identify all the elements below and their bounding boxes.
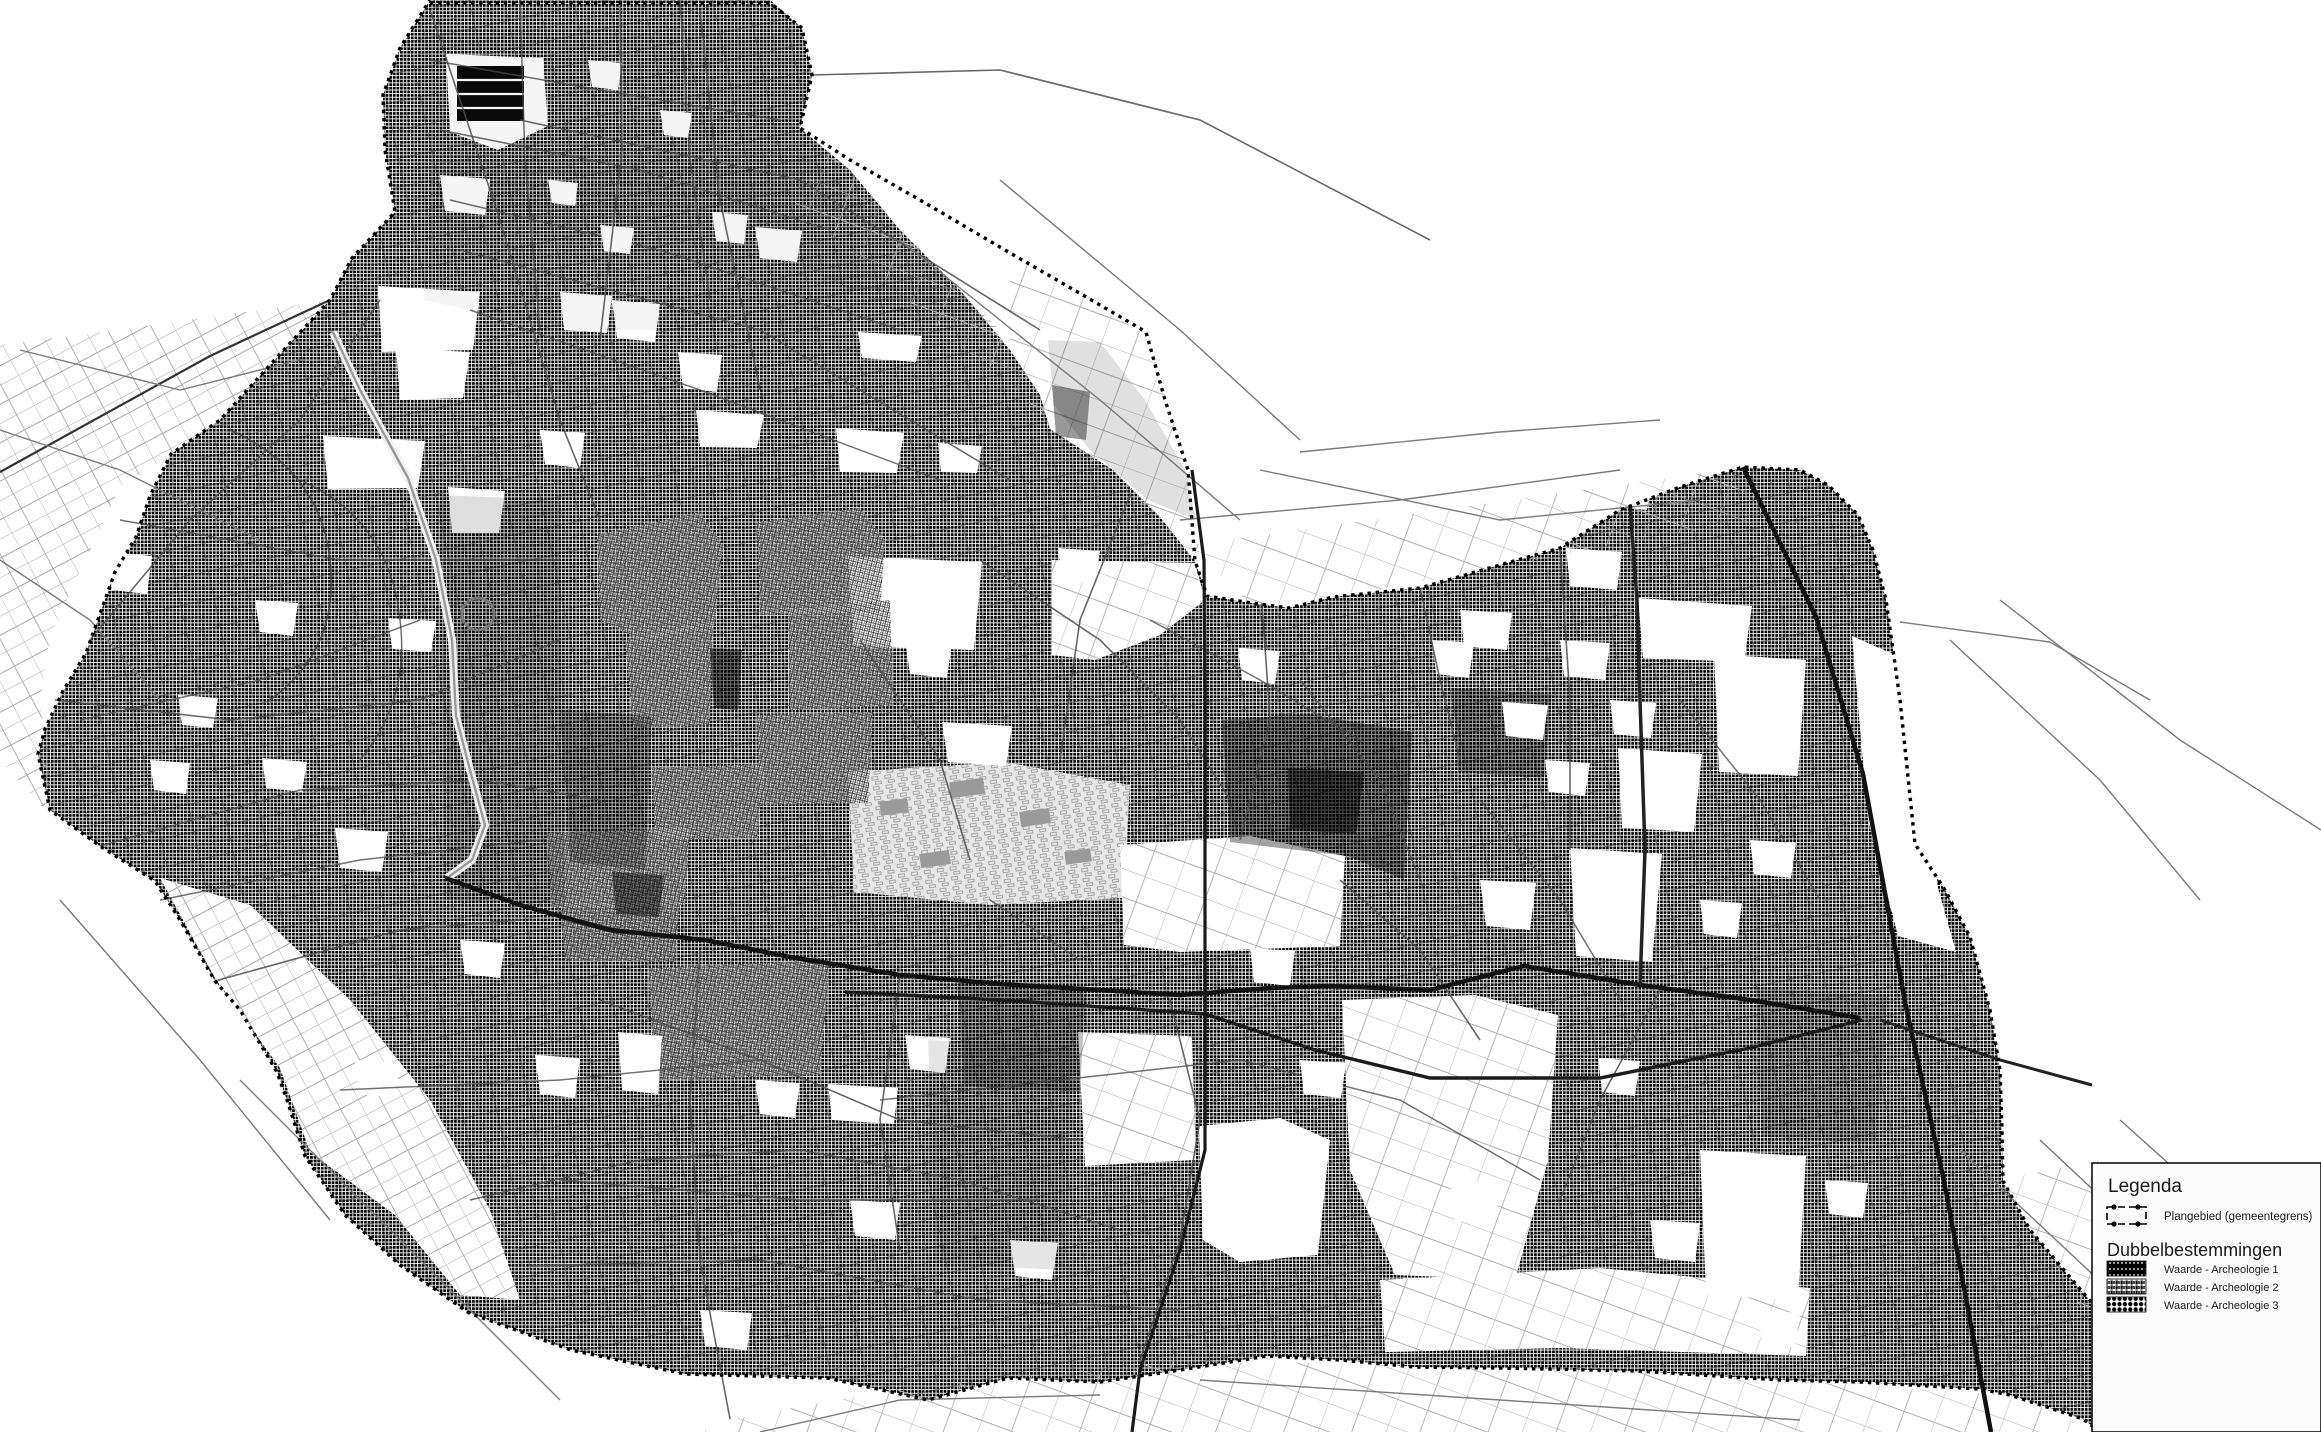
svg-text:Dubbelbestemmingen: Dubbelbestemmingen xyxy=(2107,1240,2282,1260)
svg-text:Waarde - Archeologie 3: Waarde - Archeologie 3 xyxy=(2164,1300,2279,1312)
svg-text:Legenda: Legenda xyxy=(2108,1176,2182,1197)
svg-text:Waarde - Archeologie 1: Waarde - Archeologie 1 xyxy=(2164,1264,2279,1276)
svg-text:Waarde - Archeologie 2: Waarde - Archeologie 2 xyxy=(2164,1282,2279,1294)
svg-text:Plangebied (gemeentegrens): Plangebied (gemeentegrens) xyxy=(2164,1211,2312,1223)
